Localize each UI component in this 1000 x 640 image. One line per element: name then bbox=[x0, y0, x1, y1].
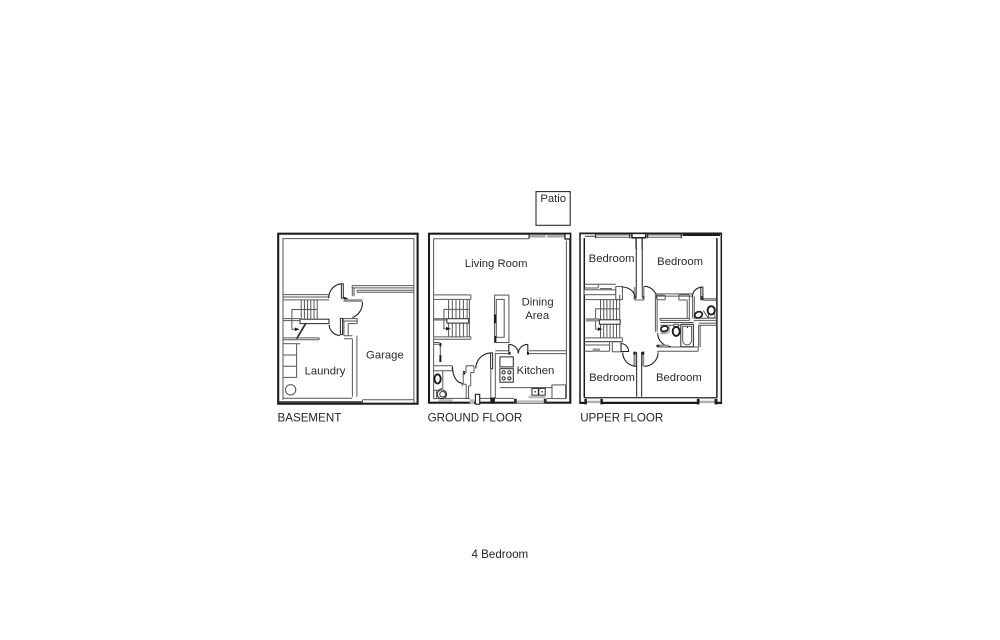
svg-text:Living Room: Living Room bbox=[465, 258, 528, 270]
svg-text:4 Bedroom: 4 Bedroom bbox=[472, 548, 529, 561]
svg-text:UPPER FLOOR: UPPER FLOOR bbox=[580, 411, 663, 424]
svg-text:Garage: Garage bbox=[366, 349, 404, 361]
svg-text:Area: Area bbox=[525, 310, 550, 322]
svg-text:Laundry: Laundry bbox=[305, 365, 346, 377]
svg-text:Patio: Patio bbox=[540, 193, 566, 205]
svg-text:Bedroom: Bedroom bbox=[589, 372, 635, 384]
svg-text:Dining: Dining bbox=[522, 297, 554, 309]
svg-text:Bedroom: Bedroom bbox=[589, 253, 635, 265]
svg-text:Bedroom: Bedroom bbox=[656, 372, 702, 384]
svg-text:Bedroom: Bedroom bbox=[657, 256, 703, 268]
svg-text:BASEMENT: BASEMENT bbox=[278, 411, 342, 424]
svg-text:Kitchen: Kitchen bbox=[517, 365, 555, 377]
svg-text:GROUND FLOOR: GROUND FLOOR bbox=[428, 412, 523, 425]
